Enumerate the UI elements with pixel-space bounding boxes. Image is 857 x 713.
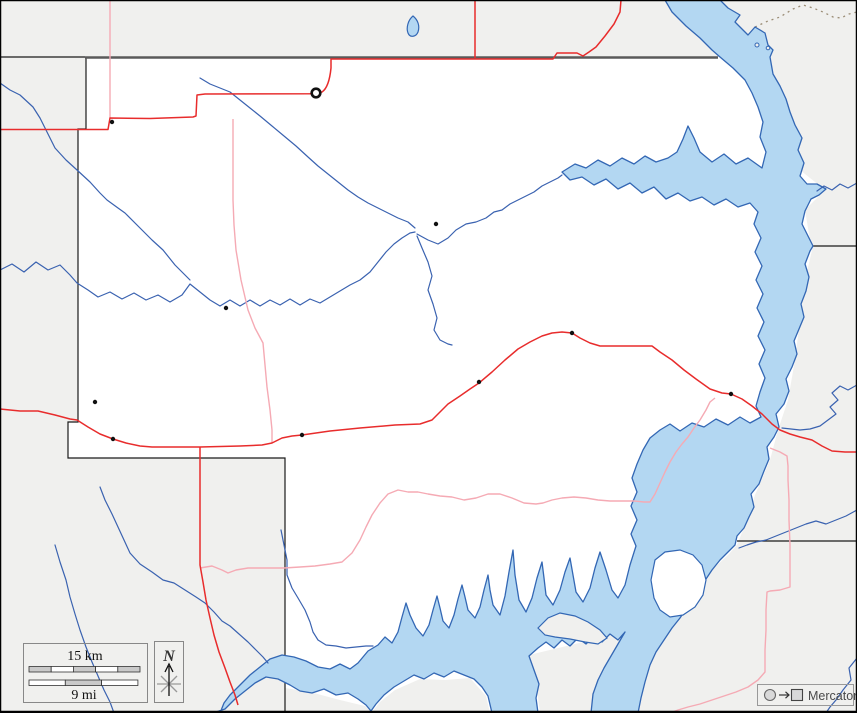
neighbor-southwest (0, 458, 285, 713)
globe-circle-icon (765, 690, 776, 701)
north-label: N (162, 648, 176, 665)
scale-bar-km (29, 667, 140, 673)
neighbor-northwest (0, 57, 86, 129)
town-dot (110, 120, 114, 124)
town-dot (93, 400, 97, 404)
projection-label: Mercator (808, 689, 857, 703)
county-seat-marker (312, 89, 321, 98)
county-map-page: 15 km 9 mi N (0, 0, 857, 713)
copyright-watermark: © d-maps.com (0, 636, 1, 705)
scale-bar-mi (29, 680, 138, 686)
town-dot (224, 306, 228, 310)
town-dot (729, 392, 733, 396)
town-dot (570, 331, 574, 335)
neighbor-west (0, 129, 78, 458)
town-dot (300, 433, 304, 437)
flat-square-icon (792, 690, 803, 701)
town-dot (434, 222, 438, 226)
scale-km-label: 15 km (67, 649, 103, 664)
scale-mi-label: 9 mi (71, 688, 96, 703)
lake-islet (766, 46, 770, 50)
town-dot (477, 380, 481, 384)
lake-islet (755, 43, 759, 47)
county-map: 15 km 9 mi N (0, 0, 857, 713)
town-dot (111, 437, 115, 441)
